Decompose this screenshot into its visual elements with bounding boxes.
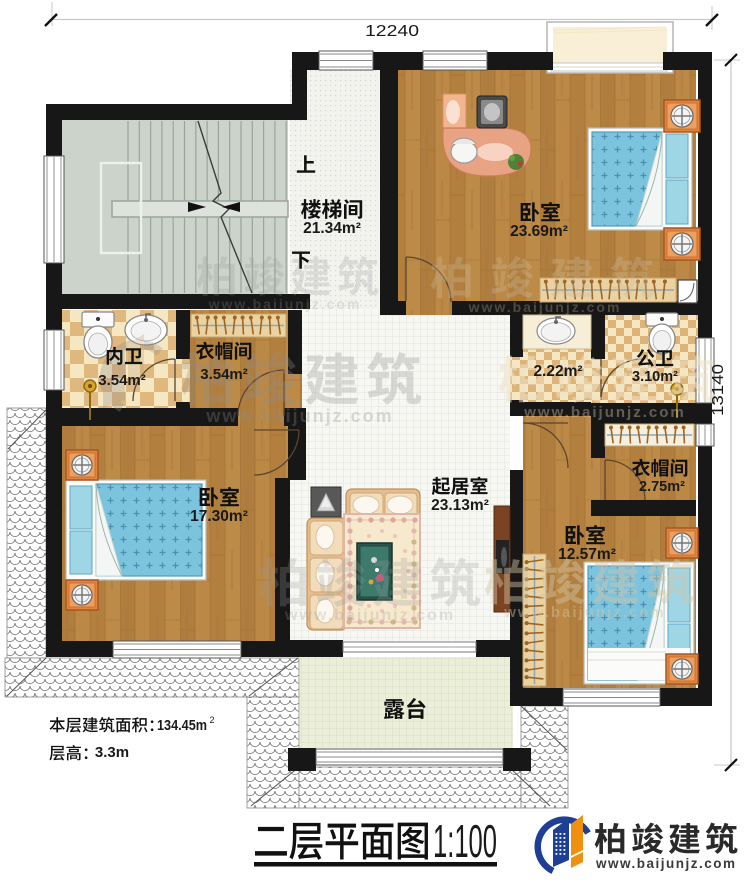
svg-text:17.30m²: 17.30m²	[190, 508, 248, 525]
svg-text:3.54m²: 3.54m²	[98, 372, 146, 389]
svg-text:2: 2	[209, 715, 214, 725]
svg-text:3.10m²: 3.10m²	[632, 369, 678, 385]
svg-text:www.baijunjz.com: www.baijunjz.com	[503, 604, 665, 621]
svg-text:23.13m²: 23.13m²	[431, 497, 489, 514]
svg-text:1:100: 1:100	[433, 815, 497, 867]
svg-text:12240: 12240	[365, 23, 419, 40]
svg-text:12.57m²: 12.57m²	[558, 546, 616, 563]
svg-text:www.baijunjz.com: www.baijunjz.com	[468, 299, 622, 315]
svg-text:www.baijunjz.com: www.baijunjz.com	[284, 607, 455, 624]
svg-text:3.54m²: 3.54m²	[200, 366, 248, 383]
svg-text:www.baijunjz.com: www.baijunjz.com	[523, 404, 685, 421]
svg-text:2.22m²: 2.22m²	[533, 363, 582, 380]
svg-text:3.3m: 3.3m	[95, 744, 129, 761]
svg-text:23.69m²: 23.69m²	[510, 223, 568, 240]
svg-text:134.45m: 134.45m	[157, 717, 207, 734]
svg-text:13140: 13140	[710, 364, 727, 416]
svg-text:21.34m²: 21.34m²	[303, 220, 361, 237]
svg-text:2.75m²: 2.75m²	[639, 479, 685, 495]
svg-text:www.baijunjz.com: www.baijunjz.com	[208, 296, 362, 312]
svg-text:www.baijunjz.com: www.baijunjz.com	[595, 856, 737, 871]
svg-text:www.baijunjz.com: www.baijunjz.com	[205, 406, 393, 426]
